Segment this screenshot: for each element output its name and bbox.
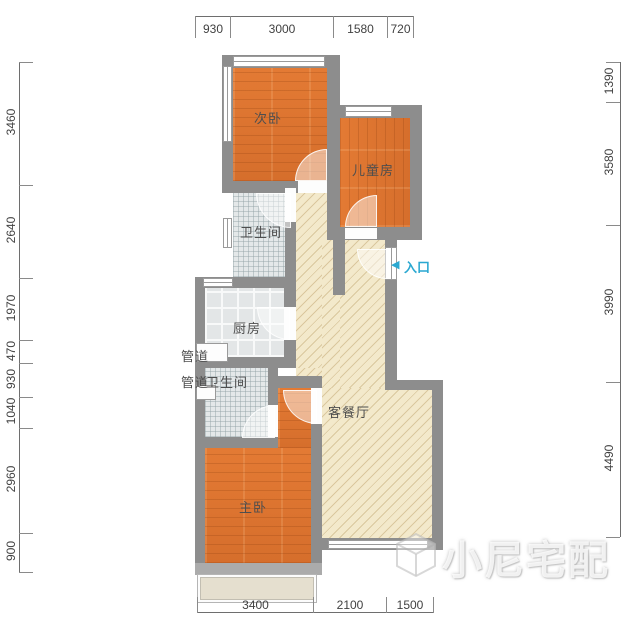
- wall-bath2-right-upper: [268, 357, 278, 405]
- tick: [19, 340, 33, 341]
- dim-bottom-1: 2100: [314, 598, 386, 612]
- dim-left-7: 900: [4, 521, 18, 581]
- wall-master-bottom: [195, 563, 322, 575]
- tick: [19, 62, 33, 63]
- tick: [19, 278, 33, 279]
- room-label-duct-upper: 管道: [181, 346, 209, 365]
- door-gap-children: [345, 228, 377, 239]
- room-label-living-dining: 客餐厅: [328, 402, 370, 421]
- wall-secondary-right: [327, 55, 340, 240]
- dim-top-1: 3000: [231, 22, 333, 36]
- room-label-secondary-bedroom: 次卧: [254, 108, 282, 127]
- room-label-bathroom-upper: 卫生间: [240, 222, 282, 241]
- window-children-top: [345, 106, 392, 117]
- tick: [19, 397, 33, 398]
- dim-left-1: 2640: [4, 200, 18, 260]
- entrance-arrow-icon: ◀: [391, 258, 399, 271]
- wall-right-outer-lower: [432, 380, 443, 550]
- wall-nook-top: [278, 376, 322, 388]
- watermark-text: 小尼宅配: [442, 528, 610, 586]
- dim-left-0: 3460: [4, 92, 18, 152]
- tick: [19, 533, 33, 534]
- tick: [606, 382, 620, 383]
- ruler-right-line: [620, 62, 621, 537]
- room-label-master-bedroom: 主卧: [239, 497, 267, 516]
- tick: [19, 428, 33, 429]
- wall-entrance-lower: [385, 280, 397, 384]
- dim-left-5: 1040: [4, 381, 18, 441]
- ruler-left-line: [19, 62, 20, 572]
- entrance-label: 入口: [404, 257, 430, 276]
- dim-bottom-2: 1500: [387, 598, 433, 612]
- wall-entrance-upper: [385, 227, 397, 247]
- dim-right-3: 4490: [602, 428, 616, 488]
- tick: [413, 16, 414, 38]
- window-bathroom-upper: [223, 218, 232, 248]
- door-gap-secondary: [298, 181, 327, 193]
- room-label-bathroom-lower: 卫生间: [206, 372, 248, 391]
- window-kitchen: [203, 278, 233, 287]
- dim-top-2: 1580: [334, 22, 387, 36]
- dim-bottom-0: 3400: [198, 598, 313, 612]
- wall-bath1-right-lower: [285, 222, 296, 285]
- wall-bath2-master-divider: [195, 437, 278, 448]
- dim-right-1: 3580: [602, 132, 616, 192]
- wall-bath1-right-upper: [285, 181, 296, 188]
- window-secondary-top: [233, 56, 325, 67]
- wall-left-outer: [195, 277, 205, 572]
- window-secondary-left: [223, 66, 232, 142]
- room-label-kitchen: 厨房: [233, 318, 261, 337]
- tick: [19, 572, 33, 573]
- dim-top-3: 720: [388, 22, 413, 36]
- room-label-duct-lower: 管道: [181, 372, 209, 391]
- ruler-top-line: [195, 16, 413, 17]
- tick: [433, 597, 434, 613]
- dim-top-0: 930: [196, 22, 230, 36]
- room-label-children-room: 儿童房: [352, 160, 394, 179]
- tick: [19, 185, 33, 186]
- wall-hall-stub: [333, 240, 345, 295]
- window-living-bottom: [328, 540, 428, 549]
- wall-children-right: [410, 105, 422, 240]
- floor-plan-canvas: 次卧 儿童房 卫生间 厨房 管道 管道 卫生间 客餐厅 主卧 ◀ 入口 930 …: [0, 0, 640, 640]
- dim-right-2: 3990: [602, 272, 616, 332]
- dim-right-0: 1390: [602, 51, 616, 111]
- tick: [606, 225, 620, 226]
- ruler-bottom-line: [197, 612, 433, 613]
- wall-kitchen-right-upper: [284, 285, 296, 307]
- dim-left-6: 2960: [4, 449, 18, 509]
- tick: [606, 537, 620, 538]
- tick: [19, 363, 33, 364]
